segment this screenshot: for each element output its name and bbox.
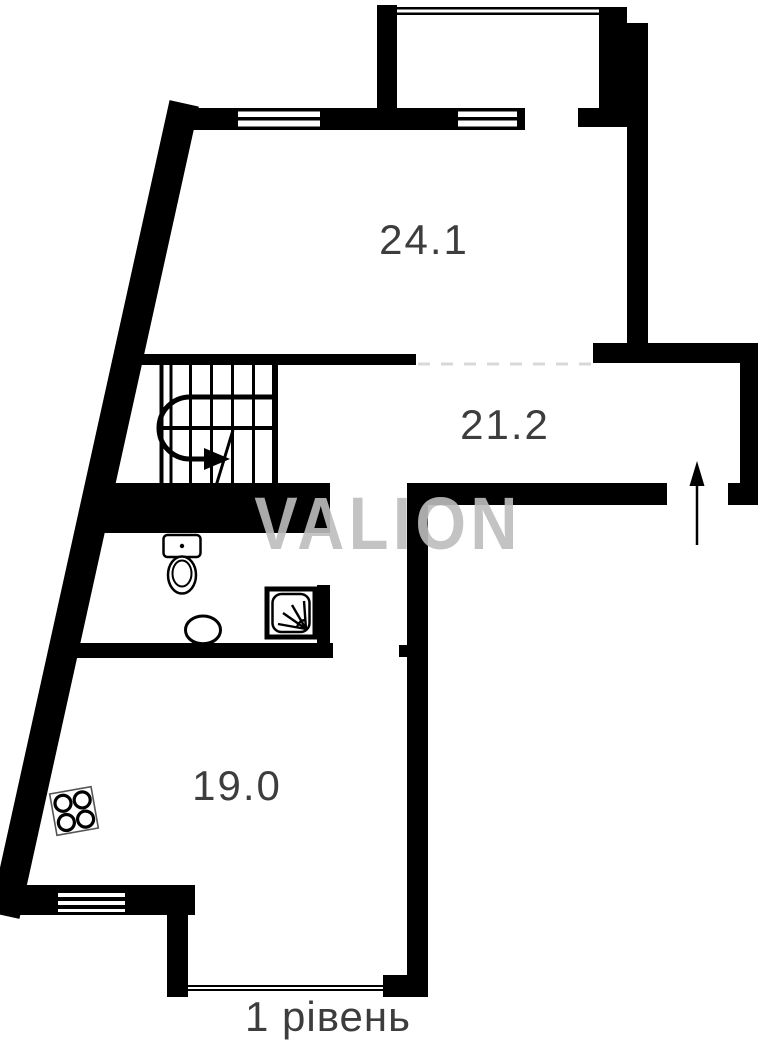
- wall-bathroom-nub: [399, 645, 407, 657]
- wall-separator-right: [593, 343, 758, 363]
- wall-right-outer: [627, 23, 648, 345]
- floor-plan: VALION 24.1 21.2 19.0 1 рівень: [0, 0, 768, 1047]
- room-area-label-19: 19.0: [192, 762, 282, 809]
- glazing-icon: [397, 7, 599, 15]
- window-icon: [458, 108, 518, 130]
- toilet-icon: [164, 535, 201, 594]
- entrance-arrow-icon: [690, 461, 705, 545]
- wall-bay-left: [167, 915, 188, 997]
- u-turn-arrow-icon: [159, 397, 272, 470]
- wall-balcony-left: [377, 5, 397, 130]
- wall-19-bottom-a: [14, 885, 58, 915]
- wall-21-right-foot: [728, 483, 758, 505]
- room-area-label-21: 21.2: [460, 401, 550, 448]
- stove-icon: [50, 787, 99, 836]
- wall-shower-right: [317, 585, 330, 658]
- window-icon: [238, 108, 320, 130]
- room-area-label-24: 24.1: [379, 216, 469, 263]
- shower-icon: [267, 589, 315, 637]
- level-caption: 1 рівень: [245, 993, 411, 1040]
- glazing-icon: [188, 985, 383, 991]
- wall-top-cap: [517, 108, 525, 130]
- staircase-icon: [159, 362, 278, 486]
- window-icon: [58, 885, 125, 915]
- watermark-text: VALION: [254, 482, 522, 565]
- wall-19-bottom-b: [125, 885, 195, 915]
- wall-top-a: [170, 108, 238, 130]
- wall-top-stub: [578, 108, 600, 127]
- wall-balcony-right: [599, 7, 627, 127]
- sink-icon: [186, 616, 221, 644]
